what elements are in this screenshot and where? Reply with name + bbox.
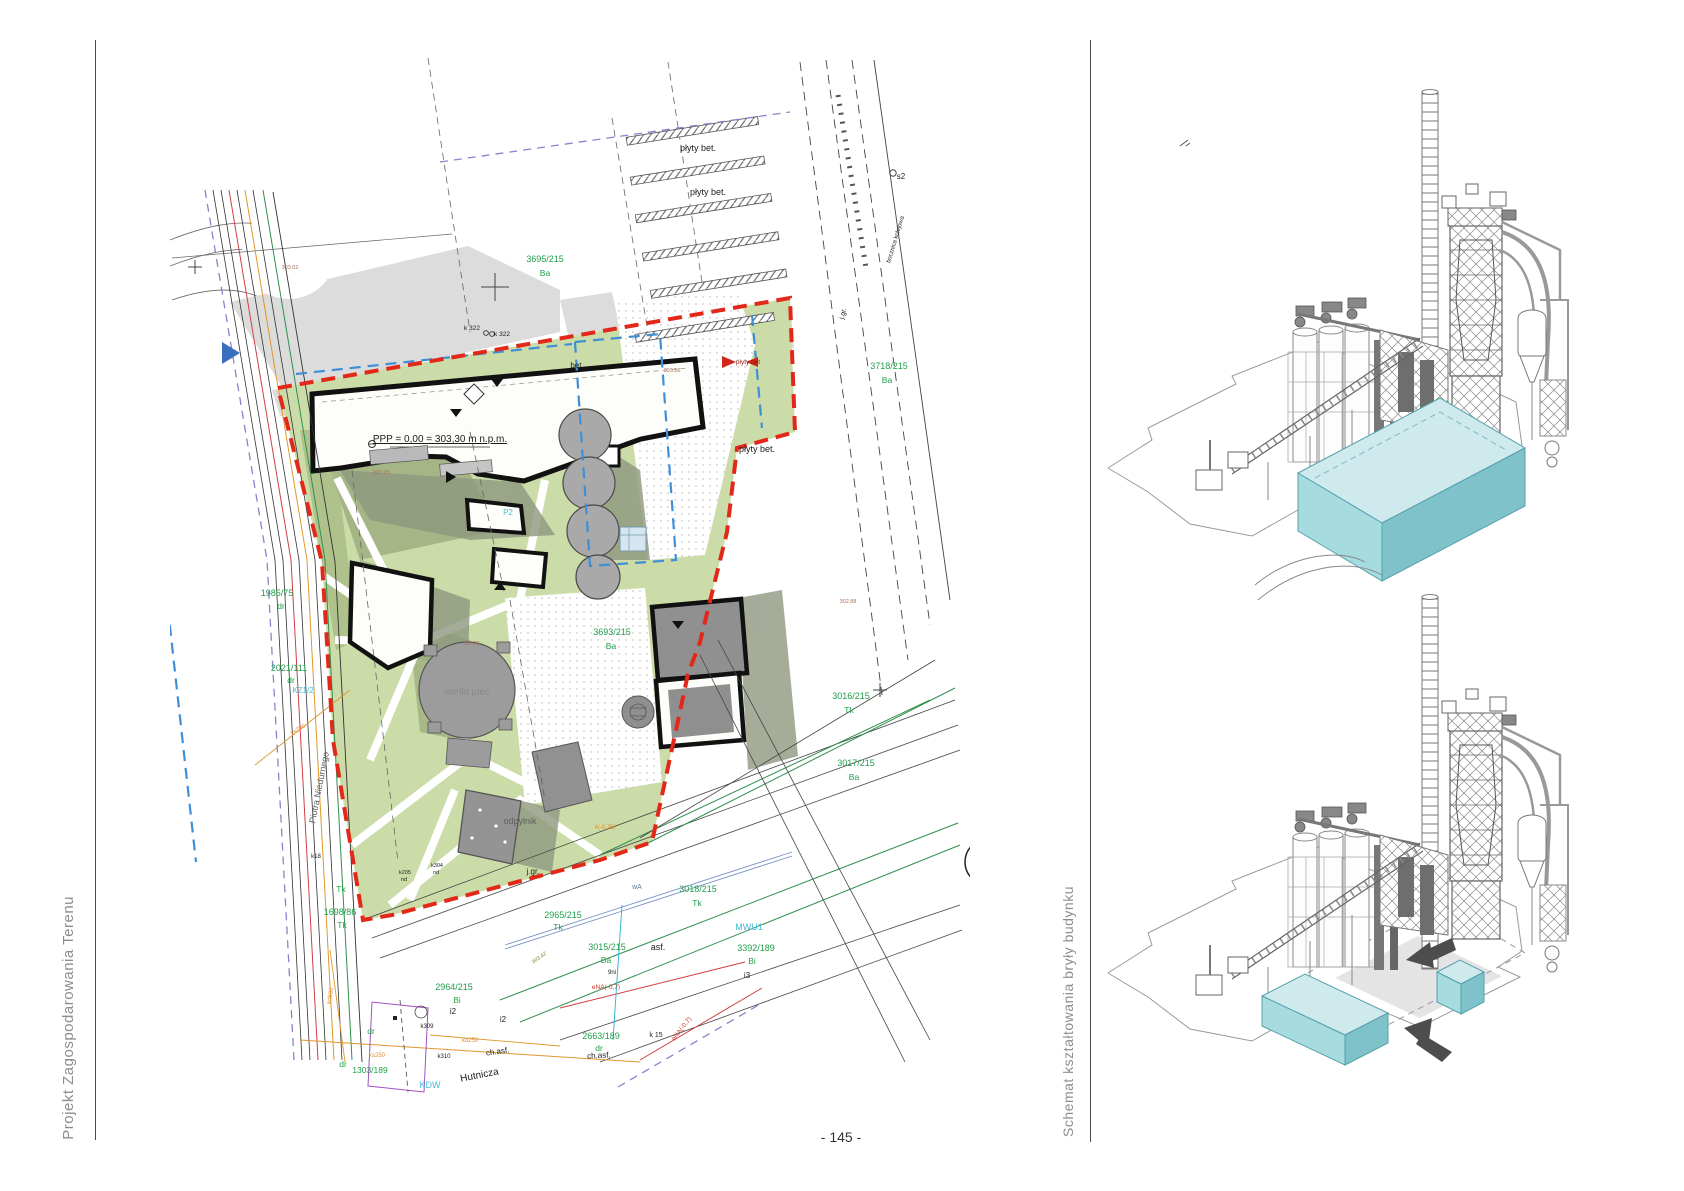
plan-label: k304 bbox=[431, 863, 443, 869]
plan-label: płyty bet. bbox=[680, 143, 716, 153]
massing-top-figure bbox=[1108, 90, 1568, 582]
building-d bbox=[492, 549, 546, 587]
plan-label: 2965/215 bbox=[544, 910, 582, 920]
left-divider-rule bbox=[95, 40, 96, 1140]
plan-label: s2 bbox=[897, 172, 906, 181]
plan-label: nd bbox=[433, 870, 439, 876]
plan-label: k205 bbox=[399, 870, 411, 876]
building-c bbox=[467, 500, 524, 533]
plan-label: j.gr. bbox=[838, 307, 848, 321]
plan-label: Hutnicza bbox=[459, 1066, 500, 1084]
plan-label: ks200 bbox=[290, 723, 307, 737]
massing-diagrams bbox=[1080, 55, 1570, 1095]
plan-label: Tk bbox=[844, 705, 854, 715]
plan-label: ch.asf. bbox=[485, 1045, 510, 1057]
plan-label: dr bbox=[277, 601, 285, 611]
north-compass-icon bbox=[965, 839, 970, 886]
plan-label: płyty bet. bbox=[739, 444, 775, 454]
page-number: - 145 - bbox=[791, 1129, 891, 1145]
plan-label: 303.39 bbox=[463, 641, 480, 647]
plan-label: Tk bbox=[692, 898, 702, 908]
plan-label: k 322 bbox=[464, 325, 480, 332]
plan-label: Ba bbox=[882, 375, 893, 385]
portfolio-page: Projekt Zagospodarowania Terenu bbox=[0, 0, 1684, 1191]
plan-label: k 15 bbox=[649, 1032, 662, 1039]
plan-label: 3018/215 bbox=[679, 884, 717, 894]
plan-label: wielki piec bbox=[443, 687, 490, 698]
plan-label: 1303/189 bbox=[352, 1065, 388, 1075]
plan-label: P2 bbox=[503, 508, 513, 517]
plan-label: 3392/189 bbox=[737, 943, 775, 953]
plan-label: k 322 bbox=[494, 331, 510, 338]
right-caption: Schemat kształtowania bryły budynku bbox=[1060, 886, 1076, 1137]
plan-label: 3693/215 bbox=[593, 627, 631, 637]
plan-label: k18 bbox=[311, 854, 321, 860]
left-caption: Projekt Zagospodarowania Terenu bbox=[60, 896, 77, 1140]
plan-label: bocznica kolejowa bbox=[886, 215, 906, 264]
plan-label: dr bbox=[367, 1026, 375, 1036]
plan-label: 2021/111 bbox=[271, 663, 307, 673]
plan-label: płyty bet. bbox=[690, 187, 726, 197]
plan-label: wA bbox=[631, 884, 642, 891]
arrow-icon-bottom bbox=[1404, 1018, 1452, 1062]
plan-label: Tk bbox=[553, 922, 563, 932]
plan-label: 1985/75 bbox=[261, 588, 294, 598]
plan-label: MWU1 bbox=[735, 922, 763, 932]
plan-label: odpylnik bbox=[503, 816, 537, 826]
plan-label: Ba bbox=[540, 268, 551, 278]
plan-label: 303.42 bbox=[531, 951, 548, 966]
plan-label: eNA(-0,7) bbox=[592, 984, 620, 991]
plan-label: asf. bbox=[651, 942, 666, 952]
building-b bbox=[350, 563, 432, 668]
site-plan-drawing: 3695/215Ba3718/215Ba3693/215Ba3016/215Tk… bbox=[170, 48, 970, 1100]
plan-label: Ba bbox=[601, 955, 612, 965]
teal-box-small bbox=[1437, 960, 1484, 1014]
plan-label: Ba bbox=[849, 772, 860, 782]
plan-label: Ba bbox=[606, 641, 617, 651]
plan-label: 2663/189 bbox=[582, 1031, 620, 1041]
plan-label: k310 bbox=[437, 1054, 451, 1060]
plan-label: ch.asf. bbox=[587, 1050, 611, 1060]
plan-label: 9ni bbox=[608, 970, 616, 976]
plan-label: j.gr. bbox=[526, 867, 540, 876]
plan-label: 3017/215 bbox=[837, 758, 875, 768]
street-right-road bbox=[800, 60, 950, 695]
plan-label: 302.88 bbox=[840, 599, 857, 605]
plan-label: dr bbox=[339, 1059, 347, 1069]
plan-label: k309 bbox=[420, 1024, 434, 1030]
plan-label: 3016/215 bbox=[832, 691, 870, 701]
plan-label: płyty bet bbox=[736, 359, 760, 366]
plan-label: Bi bbox=[453, 995, 461, 1005]
plan-label: 4(-0,75) bbox=[594, 825, 615, 831]
massing-bottom-figure bbox=[1108, 595, 1568, 1066]
plan-label: Tk bbox=[336, 884, 346, 894]
plan-label: kd600 bbox=[327, 987, 336, 1005]
plan-label: kd250 bbox=[462, 1038, 479, 1044]
plan-label: bet. bbox=[570, 361, 583, 370]
plan-label: 3695/215 bbox=[526, 254, 564, 264]
plan-label: ks250 bbox=[369, 1053, 386, 1059]
plan-label: 3718/215 bbox=[870, 361, 908, 371]
plan-label: PPP = 0,00 = 303,30 m n.p.m. bbox=[373, 434, 507, 445]
plan-label: i2 bbox=[500, 1015, 507, 1024]
plan-label: 303.02 bbox=[282, 265, 299, 271]
plan-label: 3015/215 bbox=[588, 942, 626, 952]
plan-label: Tk bbox=[337, 920, 347, 930]
plan-label: nd bbox=[401, 877, 407, 883]
cyclone-circle bbox=[622, 696, 654, 728]
plan-label: 303.25 bbox=[373, 470, 390, 476]
odpylnik-building bbox=[458, 790, 521, 864]
tick-mark bbox=[1180, 140, 1190, 146]
plan-label: KZ1/2 bbox=[292, 686, 314, 695]
plan-label: Bi bbox=[748, 956, 756, 966]
plan-label: 2964/215 bbox=[435, 982, 473, 992]
plan-label: KDW bbox=[420, 1080, 442, 1090]
plan-label: 303.56 bbox=[664, 368, 681, 374]
plan-label: 1698/86 bbox=[324, 907, 357, 917]
right-divider-rule bbox=[1090, 40, 1091, 1142]
plan-label: i3 bbox=[744, 971, 751, 980]
plan-label: i2 bbox=[450, 1007, 457, 1016]
plan-label: dr bbox=[287, 675, 295, 685]
